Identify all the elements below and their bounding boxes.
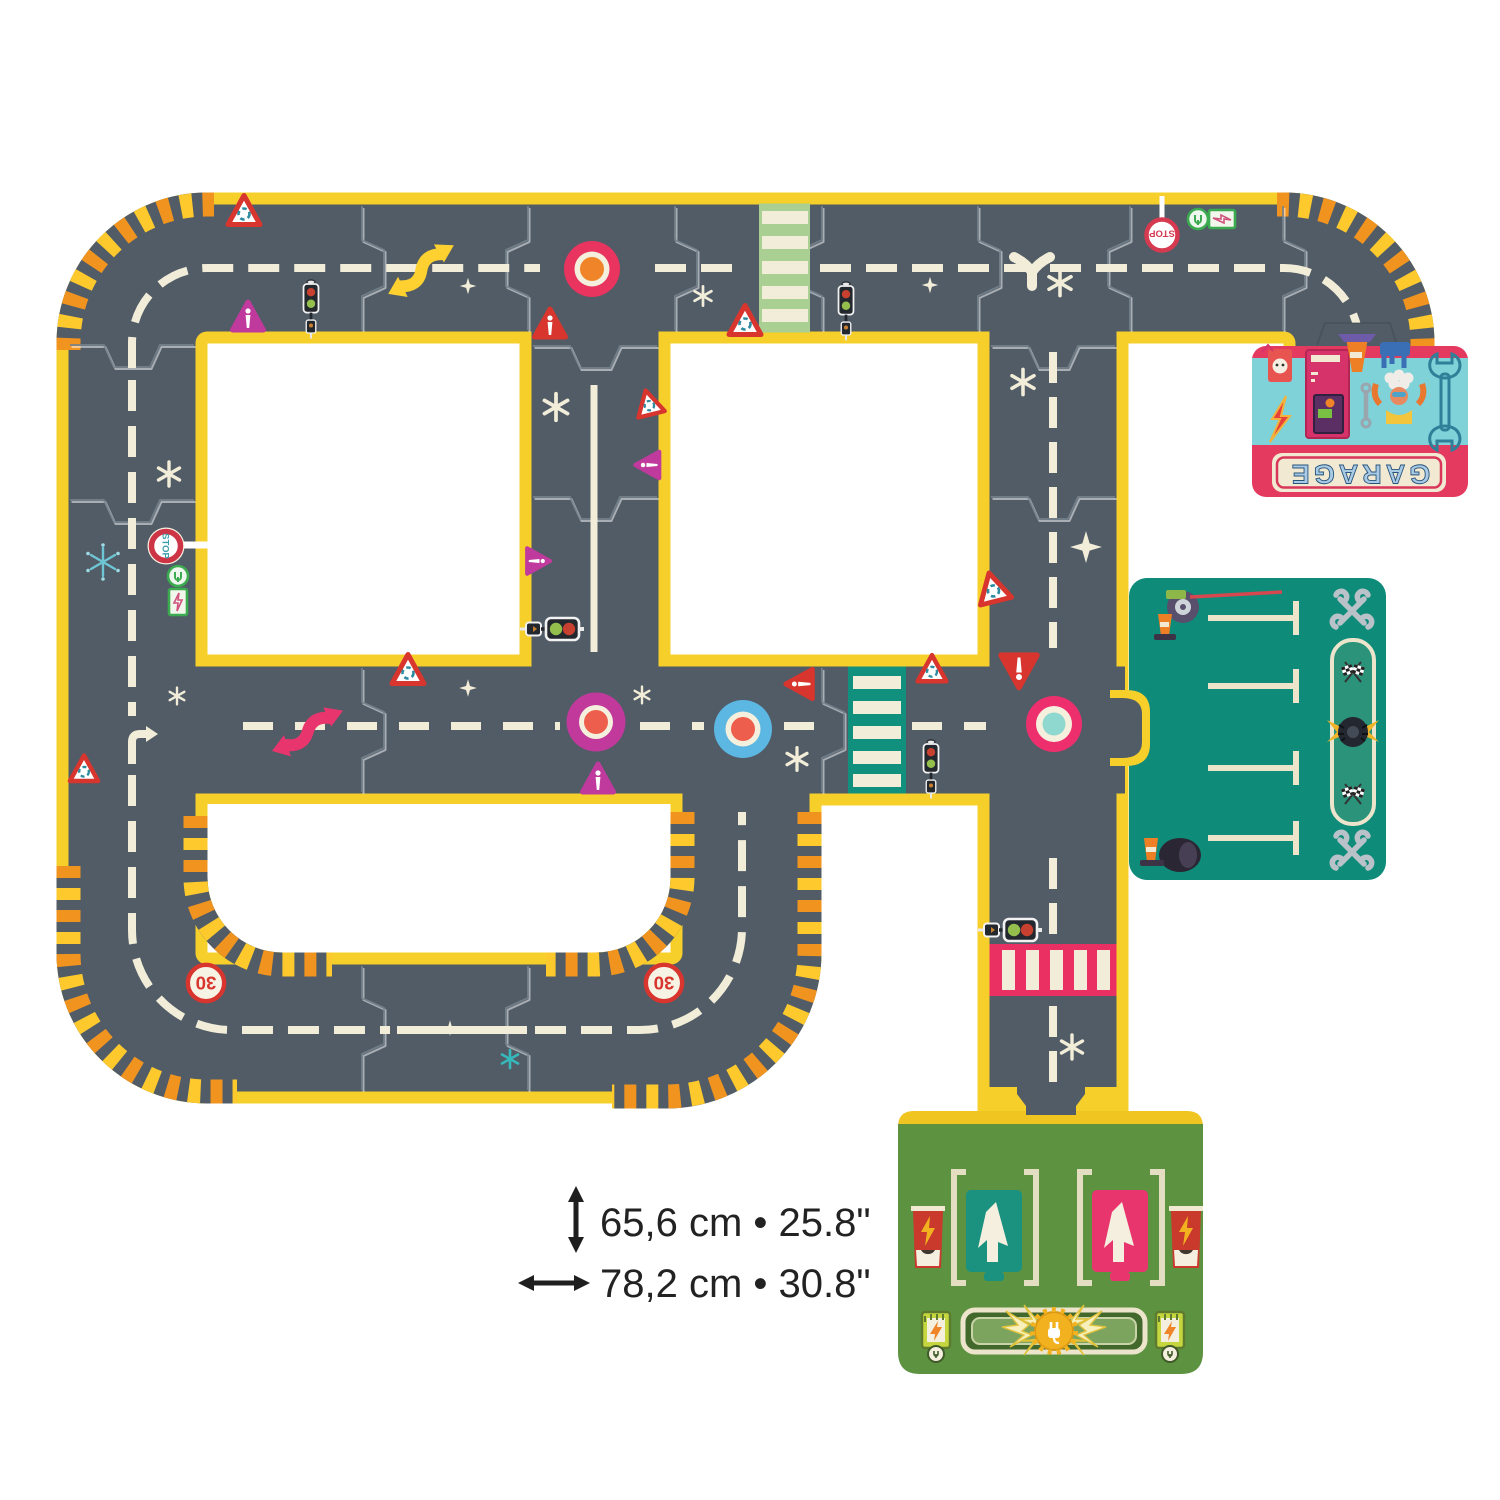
svg-text:65,6 cm • 25.8": 65,6 cm • 25.8" [600,1201,871,1245]
svg-text:78,2 cm • 30.8": 78,2 cm • 30.8" [600,1262,871,1306]
svg-text:GARAGE: GARAGE [1288,459,1431,489]
svg-text:STOP: STOP [160,533,171,559]
